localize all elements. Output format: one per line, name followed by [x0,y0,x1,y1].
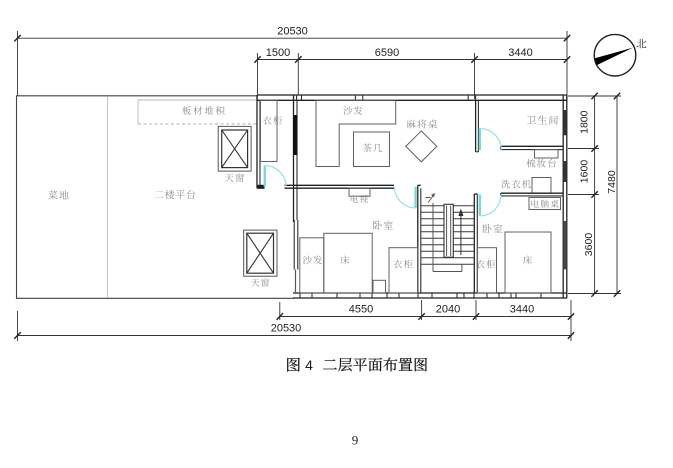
svg-text:3440: 3440 [510,304,534,316]
svg-text:3440: 3440 [508,47,532,59]
svg-text:1800: 1800 [578,110,590,134]
svg-text:20530: 20530 [271,323,302,335]
svg-text:7480: 7480 [606,170,618,194]
svg-text:4550: 4550 [349,304,373,316]
svg-text:1600: 1600 [578,160,590,184]
svg-text:3600: 3600 [583,233,595,257]
svg-text:20530: 20530 [277,26,308,38]
svg-text:2040: 2040 [436,304,460,316]
svg-text:4: 4 [305,357,313,373]
svg-text:6590: 6590 [375,47,399,59]
svg-text:9: 9 [352,433,359,448]
svg-text:1500: 1500 [266,47,290,59]
